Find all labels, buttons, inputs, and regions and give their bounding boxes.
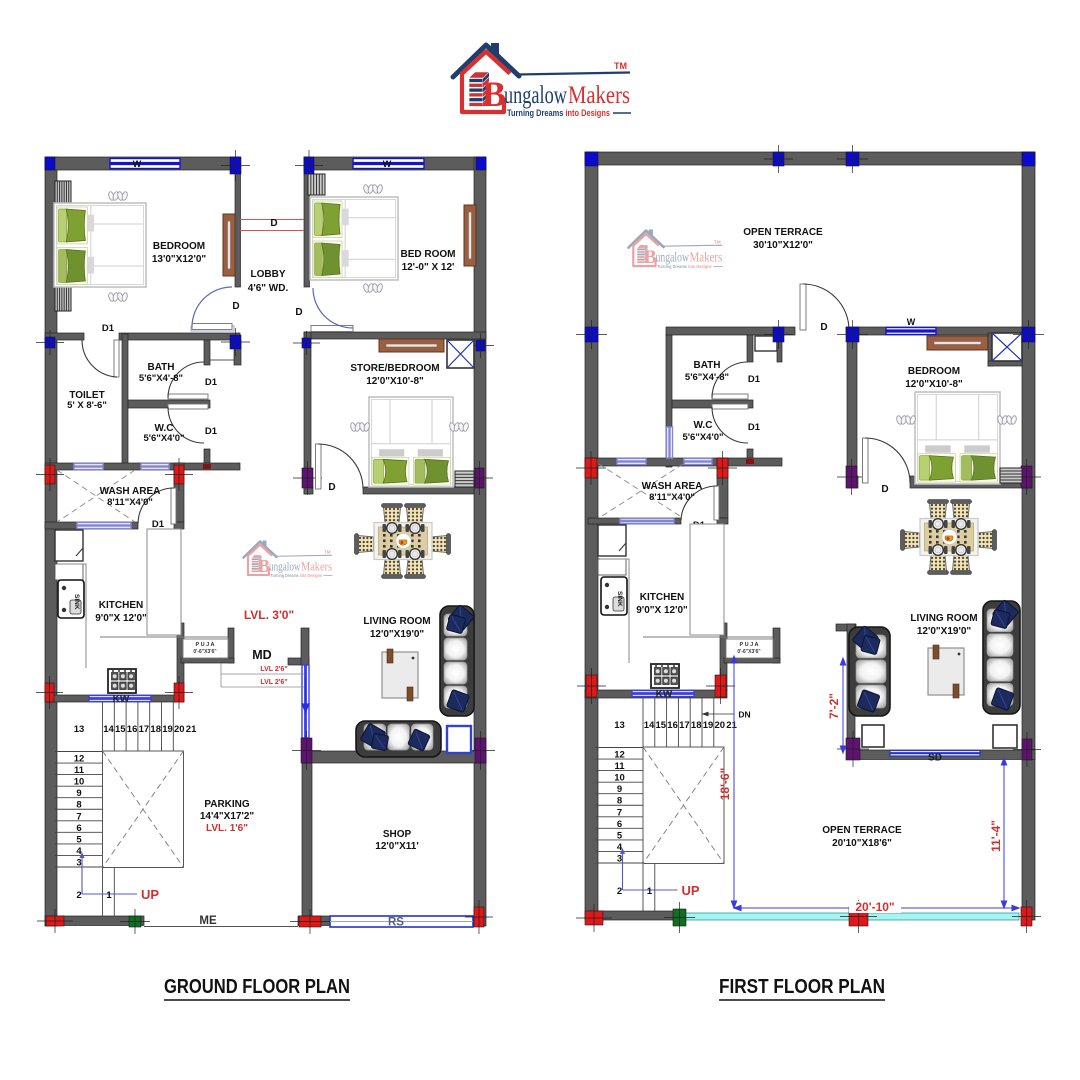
svg-text:MD: MD [252, 648, 271, 662]
svg-text:12'0"X19'0": 12'0"X19'0" [917, 626, 972, 637]
svg-text:LVL 2'6": LVL 2'6" [260, 679, 287, 686]
svg-text:W.C: W.C [694, 420, 713, 431]
svg-text:20'-10": 20'-10" [855, 900, 894, 914]
svg-text:LIVING ROOM: LIVING ROOM [910, 613, 977, 624]
svg-text:D: D [270, 218, 277, 229]
svg-text:11: 11 [74, 765, 85, 776]
svg-text:8'11"X4'0": 8'11"X4'0" [649, 492, 695, 503]
svg-text:17: 17 [139, 724, 150, 735]
svg-text:7: 7 [617, 807, 622, 818]
svg-text:GROUND FLOOR PLAN: GROUND FLOOR PLAN [164, 976, 350, 998]
svg-text:3: 3 [617, 853, 622, 864]
svg-text:6: 6 [76, 823, 81, 834]
svg-text:6: 6 [617, 819, 622, 830]
svg-text:5: 5 [76, 834, 82, 845]
svg-text:21: 21 [726, 720, 737, 731]
svg-text:10: 10 [74, 777, 85, 788]
svg-text:1: 1 [647, 886, 653, 897]
svg-text:12'0"X10'-8": 12'0"X10'-8" [366, 376, 424, 387]
svg-text:7: 7 [76, 811, 81, 822]
svg-text:11'-4": 11'-4" [989, 820, 1003, 852]
svg-text:5'6"X4'0": 5'6"X4'0" [144, 433, 185, 444]
svg-text:7'-2": 7'-2" [827, 693, 841, 719]
svg-text:20: 20 [715, 720, 726, 731]
svg-text:1: 1 [106, 890, 112, 901]
svg-text:W: W [907, 317, 916, 327]
svg-text:LVL. 3'0": LVL. 3'0" [244, 608, 294, 622]
svg-text:30'10"X12'0": 30'10"X12'0" [753, 240, 813, 251]
svg-text:12: 12 [74, 754, 85, 765]
svg-text:WASH AREA: WASH AREA [100, 486, 161, 497]
svg-text:9: 9 [617, 784, 622, 795]
svg-text:D: D [820, 322, 827, 333]
svg-text:12: 12 [614, 750, 625, 761]
svg-text:14: 14 [103, 724, 114, 735]
svg-text:KITCHEN: KITCHEN [99, 600, 143, 611]
svg-text:STORE/BEDROOM: STORE/BEDROOM [350, 363, 439, 374]
svg-text:8'11"X4'0": 8'11"X4'0" [107, 497, 153, 508]
svg-text:20'10"X18'6": 20'10"X18'6" [832, 838, 892, 849]
svg-text:8: 8 [76, 800, 81, 811]
svg-text:13: 13 [74, 724, 85, 735]
svg-text:19: 19 [162, 724, 173, 735]
svg-text:9'0"X 12'0": 9'0"X 12'0" [95, 613, 147, 624]
svg-text:ME: ME [199, 915, 217, 927]
svg-text:OPEN TERRACE: OPEN TERRACE [822, 825, 902, 836]
svg-text:18: 18 [150, 724, 161, 735]
svg-text:12'0"X19'0": 12'0"X19'0" [370, 629, 425, 640]
svg-text:5'6"X4'0": 5'6"X4'0" [683, 432, 724, 443]
svg-text:14: 14 [644, 720, 655, 731]
svg-text:BED ROOM: BED ROOM [401, 249, 456, 260]
svg-text:FIRST FLOOR PLAN: FIRST FLOOR PLAN [719, 976, 885, 998]
svg-text:KITCHEN: KITCHEN [640, 592, 684, 603]
svg-text:8: 8 [617, 796, 622, 807]
svg-text:P U J A: P U J A [740, 642, 759, 648]
svg-text:SINK: SINK [616, 591, 623, 607]
svg-text:UP: UP [141, 887, 159, 902]
svg-text:LIVING ROOM: LIVING ROOM [363, 616, 430, 627]
svg-text:12'-0" X 12': 12'-0" X 12' [402, 262, 455, 273]
svg-text:BATH: BATH [693, 360, 720, 371]
svg-text:18'-6": 18'-6" [718, 768, 732, 801]
svg-text:21: 21 [186, 724, 197, 735]
svg-text:BEDROOM: BEDROOM [153, 241, 205, 252]
svg-text:4'6" WD.: 4'6" WD. [248, 283, 289, 294]
svg-text:D1: D1 [205, 426, 218, 437]
svg-text:3: 3 [76, 857, 81, 868]
svg-text:DN: DN [738, 710, 750, 720]
svg-text:D1: D1 [748, 374, 761, 385]
svg-text:D1: D1 [152, 519, 165, 530]
svg-text:W: W [383, 159, 392, 169]
svg-text:LVL. 1'6": LVL. 1'6" [206, 823, 248, 834]
svg-text:LOBBY: LOBBY [251, 269, 286, 280]
svg-text:16: 16 [127, 724, 138, 735]
svg-text:9'0"X 12'0": 9'0"X 12'0" [636, 605, 688, 616]
svg-text:13'0"X12'0": 13'0"X12'0" [152, 254, 207, 265]
svg-text:BEDROOM: BEDROOM [908, 366, 960, 377]
svg-text:D: D [881, 484, 888, 495]
svg-text:10: 10 [614, 773, 625, 784]
svg-text:D: D [295, 307, 302, 318]
svg-text:WASH AREA: WASH AREA [642, 481, 703, 492]
svg-text:SD: SD [928, 753, 942, 764]
svg-text:UP: UP [681, 883, 699, 898]
svg-text:SHOP: SHOP [383, 829, 412, 840]
svg-text:5' X 8'-6": 5' X 8'-6" [67, 400, 107, 411]
svg-text:12'0"X11': 12'0"X11' [375, 841, 418, 852]
svg-text:D: D [232, 301, 239, 312]
svg-text:D1: D1 [102, 323, 115, 334]
svg-text:P U J A: P U J A [196, 642, 215, 648]
svg-text:PARKING: PARKING [204, 799, 250, 810]
svg-text:19: 19 [703, 720, 714, 731]
svg-text:LVL 2'6": LVL 2'6" [260, 666, 287, 673]
svg-text:KW: KW [113, 694, 130, 705]
svg-text:5'6"X4'-8": 5'6"X4'-8" [139, 373, 183, 384]
svg-text:11: 11 [614, 761, 625, 772]
svg-text:17: 17 [679, 720, 690, 731]
svg-text:18: 18 [691, 720, 702, 731]
svg-text:16: 16 [667, 720, 678, 731]
svg-text:D1: D1 [205, 377, 218, 388]
svg-text:5: 5 [617, 830, 623, 841]
svg-text:RS: RS [388, 917, 404, 929]
svg-text:12'0"X10'-8": 12'0"X10'-8" [905, 379, 963, 390]
svg-text:BATH: BATH [147, 362, 174, 373]
svg-text:SINK: SINK [73, 594, 80, 610]
svg-text:D: D [328, 482, 335, 493]
svg-text:14'4"X17'2": 14'4"X17'2" [200, 811, 255, 822]
svg-text:0'-6"X3'6": 0'-6"X3'6" [193, 649, 217, 655]
svg-text:2: 2 [76, 890, 81, 901]
svg-text:5'6"X4'-8": 5'6"X4'-8" [685, 372, 729, 383]
svg-text:9: 9 [76, 788, 81, 799]
svg-text:2: 2 [617, 886, 622, 897]
svg-text:W: W [133, 159, 142, 169]
svg-text:0'-6"X3'6": 0'-6"X3'6" [737, 649, 761, 655]
svg-text:15: 15 [115, 724, 126, 735]
svg-text:15: 15 [656, 720, 667, 731]
svg-text:OPEN TERRACE: OPEN TERRACE [743, 227, 823, 238]
svg-text:20: 20 [174, 724, 185, 735]
svg-text:KW: KW [656, 689, 673, 700]
svg-text:D1: D1 [748, 422, 761, 433]
svg-text:13: 13 [614, 720, 625, 731]
